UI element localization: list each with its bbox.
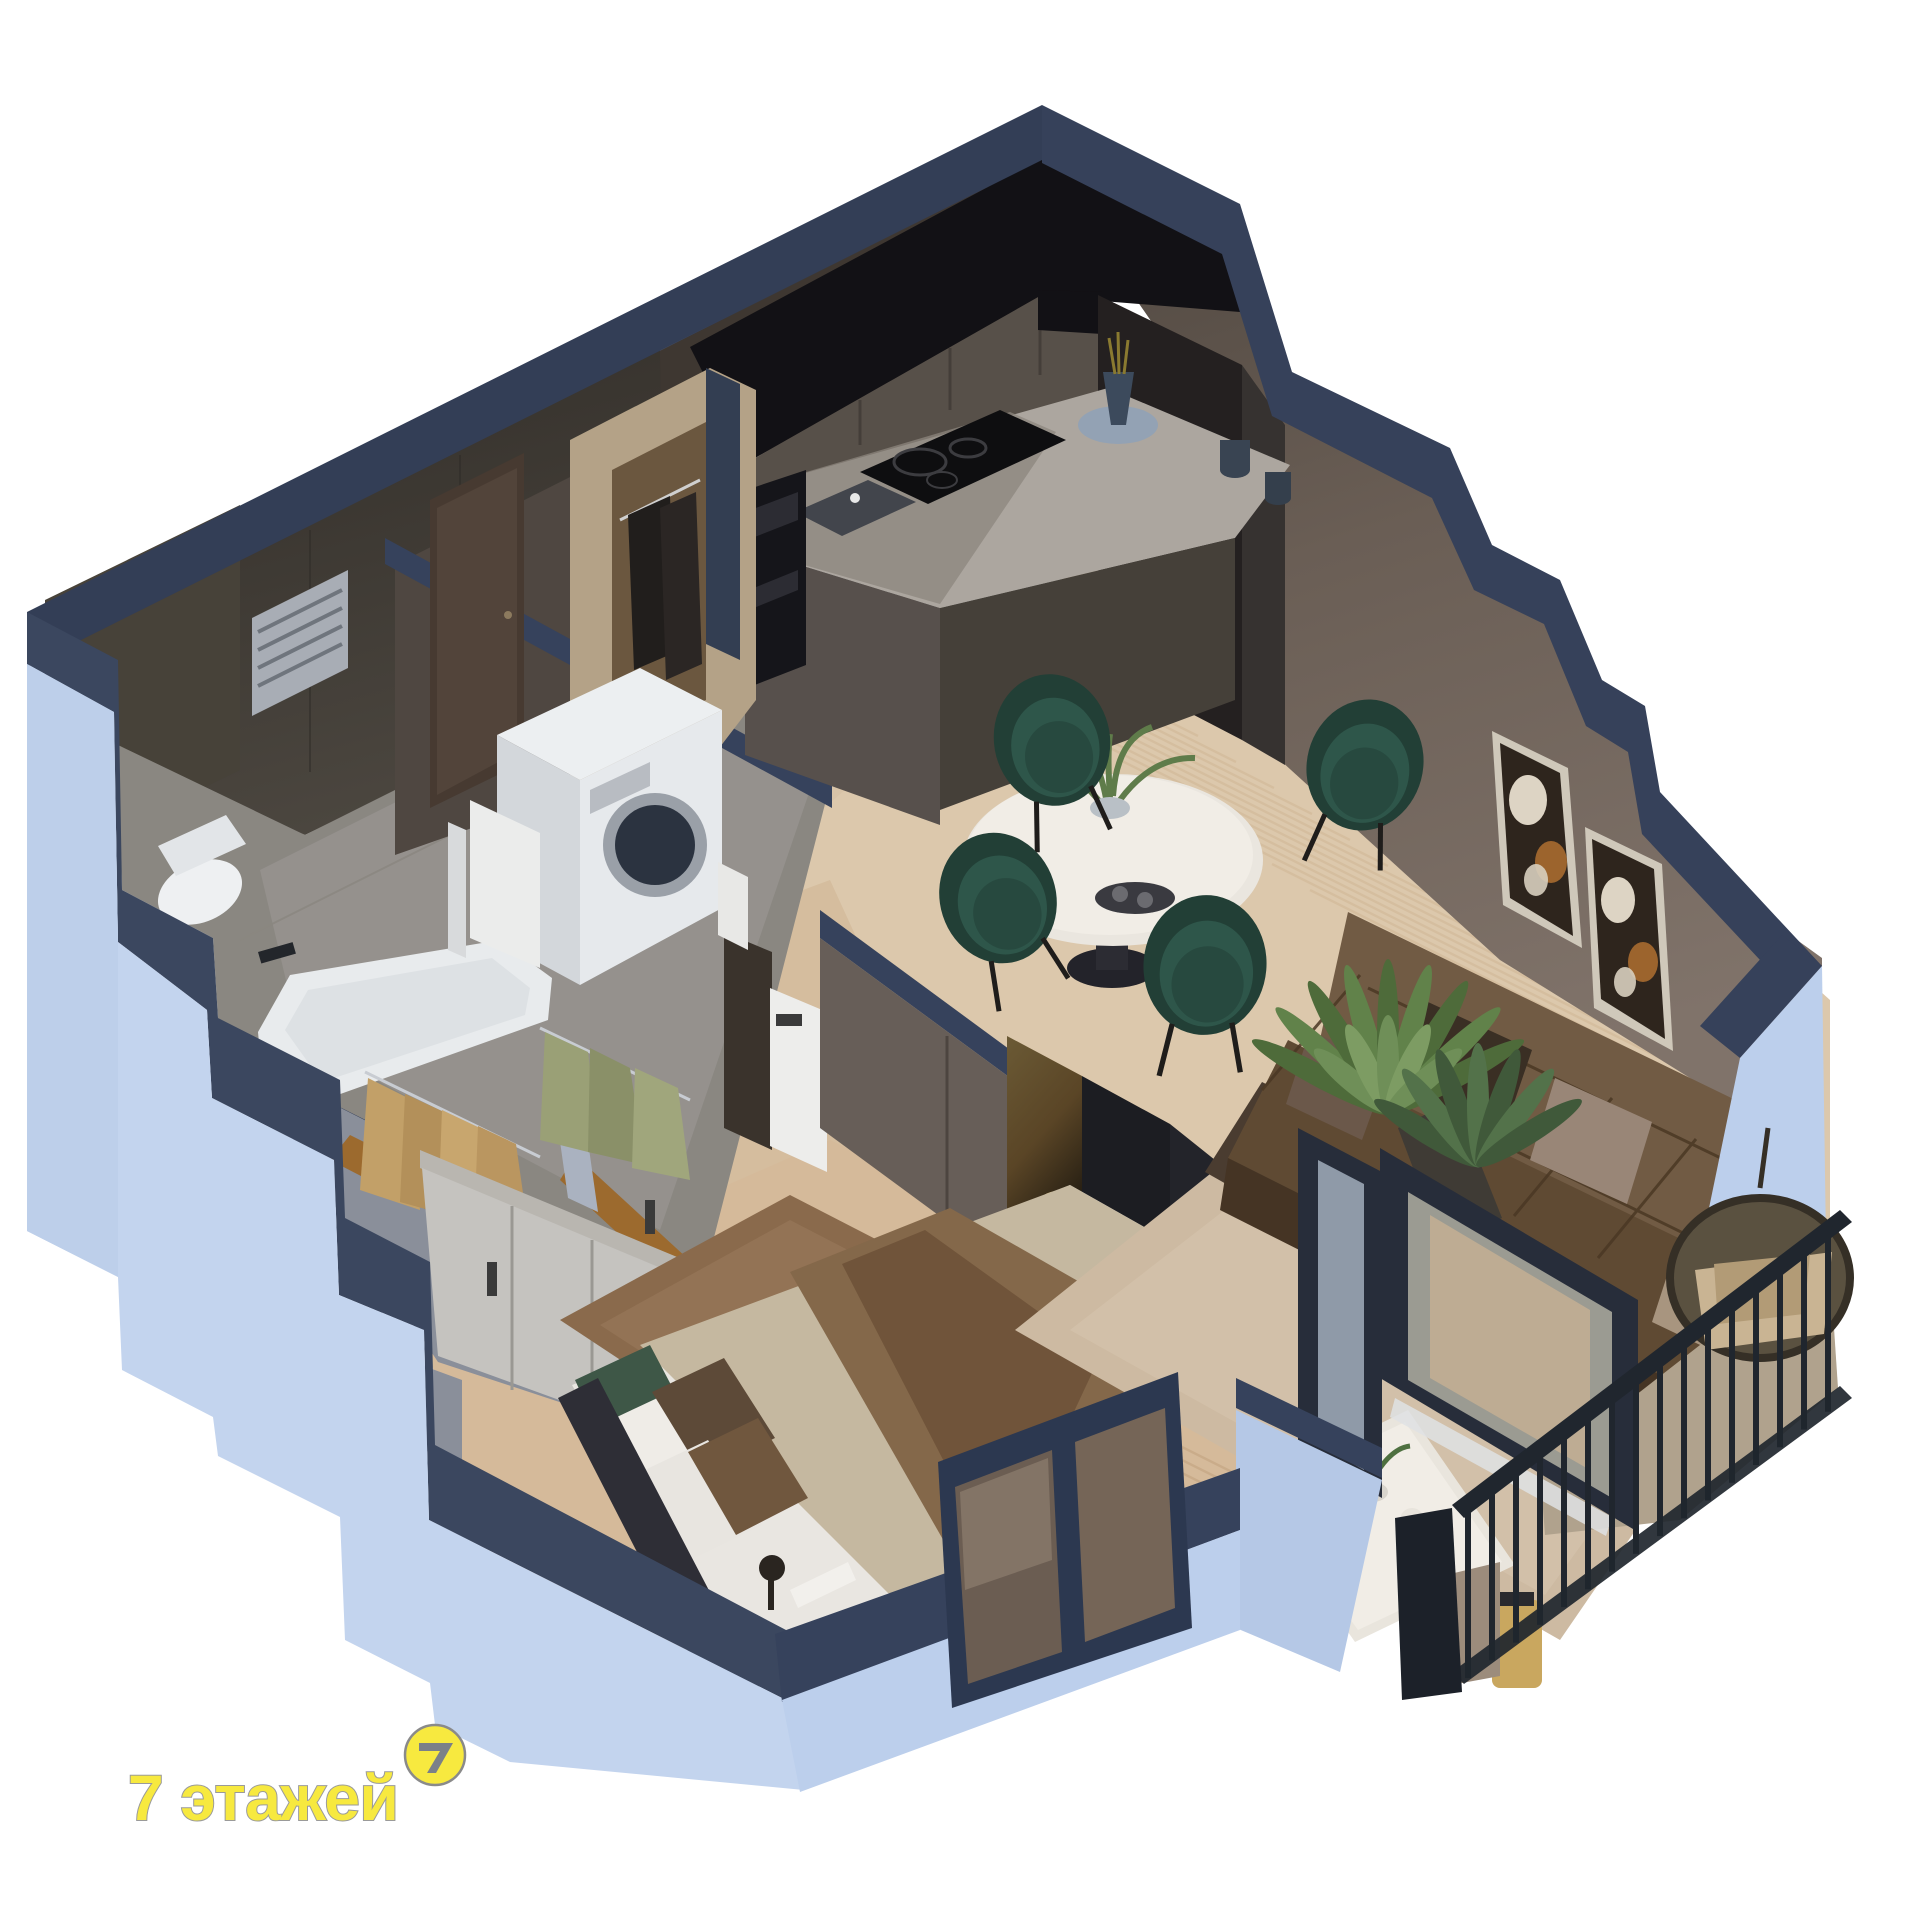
svg-text:7 этажей: 7 этажей: [128, 1762, 398, 1834]
